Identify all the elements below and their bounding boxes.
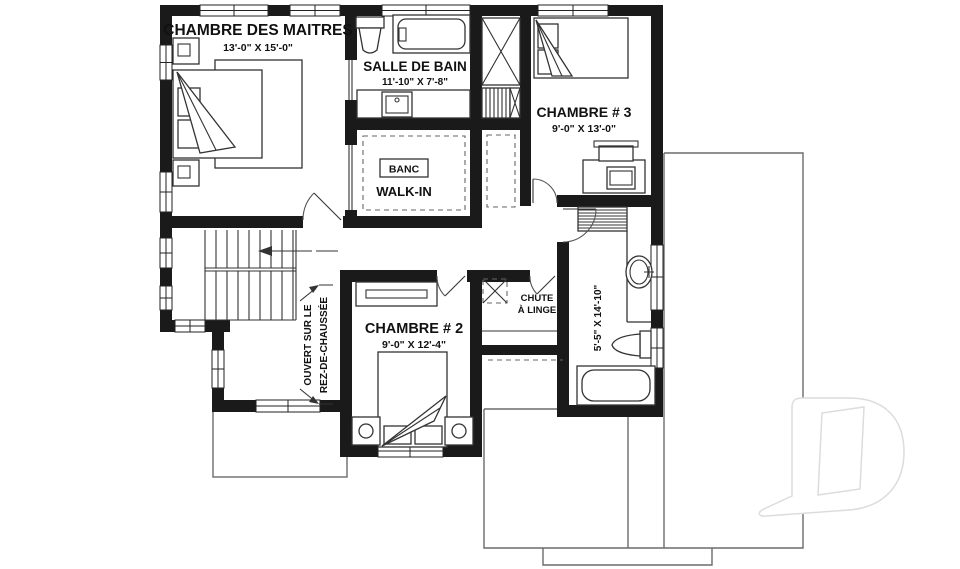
window <box>160 45 172 80</box>
walkin-door-jamb <box>349 145 352 210</box>
window <box>200 5 268 16</box>
chute-label-1: CHUTE <box>521 293 554 304</box>
desk <box>583 141 645 193</box>
nightstand <box>352 417 380 445</box>
bathroom2-dims: 5'-5" X 14'-10" <box>593 284 604 351</box>
pocket-door-jamb <box>349 60 352 100</box>
bedroom3-name: CHAMBRE # 3 <box>537 104 632 120</box>
master-dims: 13'-0" X 15'-0" <box>223 42 293 54</box>
window <box>651 245 663 310</box>
toilet <box>612 331 651 358</box>
bedroom2-door <box>437 276 465 296</box>
bedroom2-dims: 9'-0" X 12'-4" <box>382 339 446 351</box>
nightstand <box>445 417 473 445</box>
window <box>175 320 205 332</box>
bathroom-name: SALLE DE BAIN <box>363 59 467 74</box>
chair <box>599 146 633 161</box>
roof-outline <box>213 153 803 565</box>
bathtub <box>577 366 655 405</box>
window <box>160 286 172 310</box>
chute-door <box>530 276 555 294</box>
bedroom3-closet <box>482 18 520 118</box>
bathtub <box>393 15 470 53</box>
bench-label: BANC <box>389 164 420 176</box>
dresser <box>356 282 437 306</box>
floor-plan-drawing: CHAMBRE DES MAITRES 13'-0" X 15'-0" SALL… <box>0 0 960 569</box>
bedroom2 <box>352 282 473 447</box>
master-bedroom <box>173 38 302 186</box>
window <box>651 328 663 368</box>
bedroom3-door <box>533 179 557 203</box>
bedroom2-name: CHAMBRE # 2 <box>365 321 463 337</box>
round-sink <box>626 256 654 288</box>
window <box>160 172 172 212</box>
open-below-label-1: OUVERT SUR LE <box>303 304 314 385</box>
open-below-label-2: REZ-DE-CHAUSSÉE <box>317 297 330 393</box>
floor-plan-page: CHAMBRE DES MAITRES 13'-0" X 15'-0" SALL… <box>0 0 960 569</box>
bedroom3-dims: 9'-0" X 13'-0" <box>552 123 616 135</box>
nightstand <box>173 160 199 186</box>
master-name: CHAMBRE DES MAITRES <box>163 22 352 39</box>
bathroom-dims: 11'-10" X 7'-8" <box>382 77 448 88</box>
brand-watermark-d-icon <box>759 398 904 516</box>
master-door <box>303 193 341 220</box>
bathroom2 <box>577 207 655 405</box>
bed <box>378 352 447 447</box>
toilet <box>356 17 384 53</box>
window <box>212 350 224 388</box>
window <box>290 5 340 16</box>
window <box>160 238 172 268</box>
walkin-name: WALK-IN <box>376 184 432 199</box>
linen-closet <box>487 135 515 207</box>
window <box>538 5 608 16</box>
vanity-sink <box>357 90 470 118</box>
chute-label-2: À LINGE <box>518 305 557 316</box>
shelf-hatch <box>578 207 627 231</box>
nightstand <box>173 38 199 64</box>
stair-direction-arrow <box>258 246 338 256</box>
